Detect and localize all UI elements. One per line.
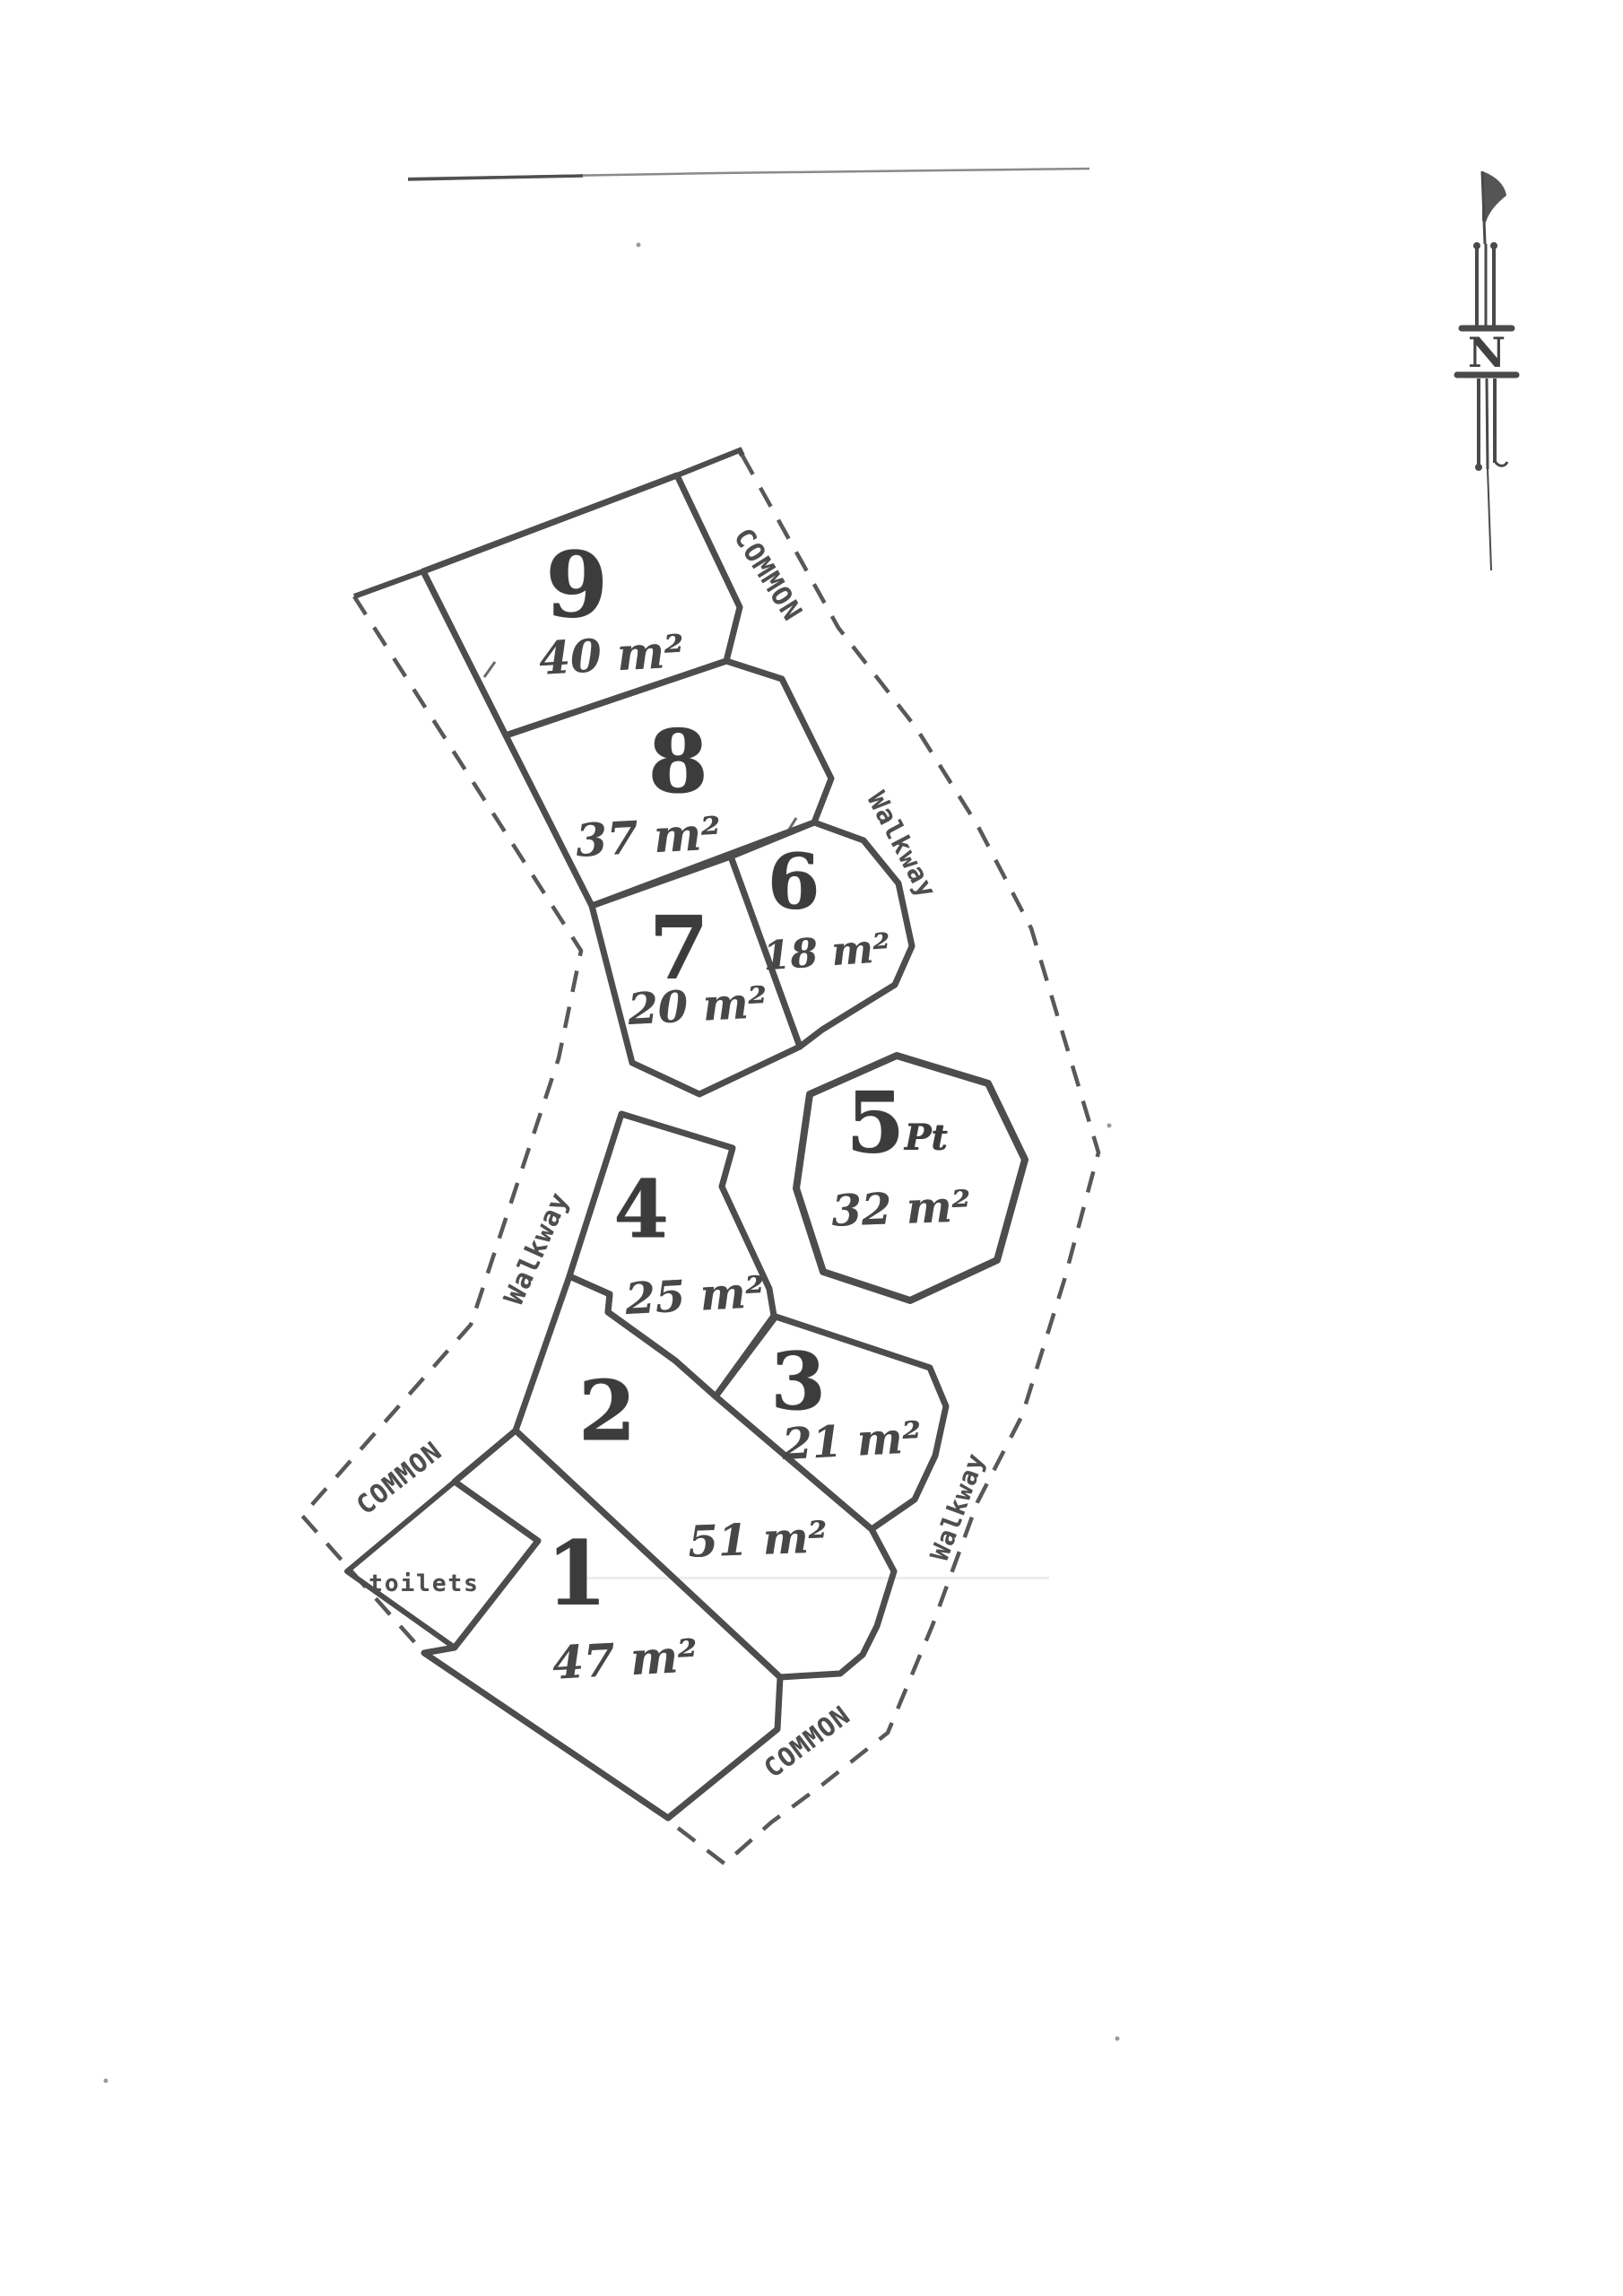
lot-5-number-digit: 5 [846,1074,904,1172]
lot-3-number: 3 [770,1335,825,1428]
lot-7-area: 20 m² [627,978,768,1035]
lot-4-outline [569,1114,774,1396]
scan-speck [637,243,641,248]
scan-speck [1115,2037,1120,2041]
north-arrow: N [1457,171,1516,570]
lot-5-part-suffix: Pt [905,1117,948,1158]
north-arrow-line [1487,378,1488,469]
lot-2-number: 2 [578,1362,636,1459]
scan-line-top-dark [408,176,583,179]
lot-9-area: 40 m² [538,624,686,684]
scan-streak [574,1577,1049,1579]
north-arrow-tail [1488,469,1491,570]
lot-5-number: 5Pt [846,1074,947,1172]
site-plan-drawing: N [0,0,1623,2296]
boundary-top-left-segment [354,571,423,596]
lot-4-number: 4 [613,1162,668,1256]
lot-8-area: 37 m² [575,806,723,866]
north-arrow-knob [1475,464,1482,471]
boundary-top-corner-segment [677,450,742,475]
lot-4-area: 25 m² [624,1267,766,1325]
north-arrow-knob [1473,242,1480,249]
scan-speck [104,2079,108,2083]
north-arrow-n-letter: N [1468,328,1506,377]
north-arrow-pennant [1482,171,1506,222]
scan-tick [484,662,495,677]
lot-6-area: 18 m² [761,926,892,980]
north-arrow-hook [1495,461,1507,465]
lot-1-number: 1 [546,1523,607,1626]
lot-3-area: 21 m² [781,1413,923,1470]
north-arrow-knob [1490,242,1497,249]
scanned-site-plan-page: N 9 8 7 6 5Pt 4 3 2 1 40 m² 37 m² 20 m² … [0,0,1623,2296]
lot-9-number: 9 [545,532,608,638]
lot-2-area: 51 m² [687,1512,828,1567]
toilets-label: toilets [369,1570,480,1597]
lot-1-area: 47 m² [551,1629,699,1689]
lot-8-number: 8 [648,711,708,813]
lot-5-area: 32 m² [830,1181,971,1236]
scan-speck [1107,1124,1112,1128]
lot-6-number: 6 [768,838,820,926]
